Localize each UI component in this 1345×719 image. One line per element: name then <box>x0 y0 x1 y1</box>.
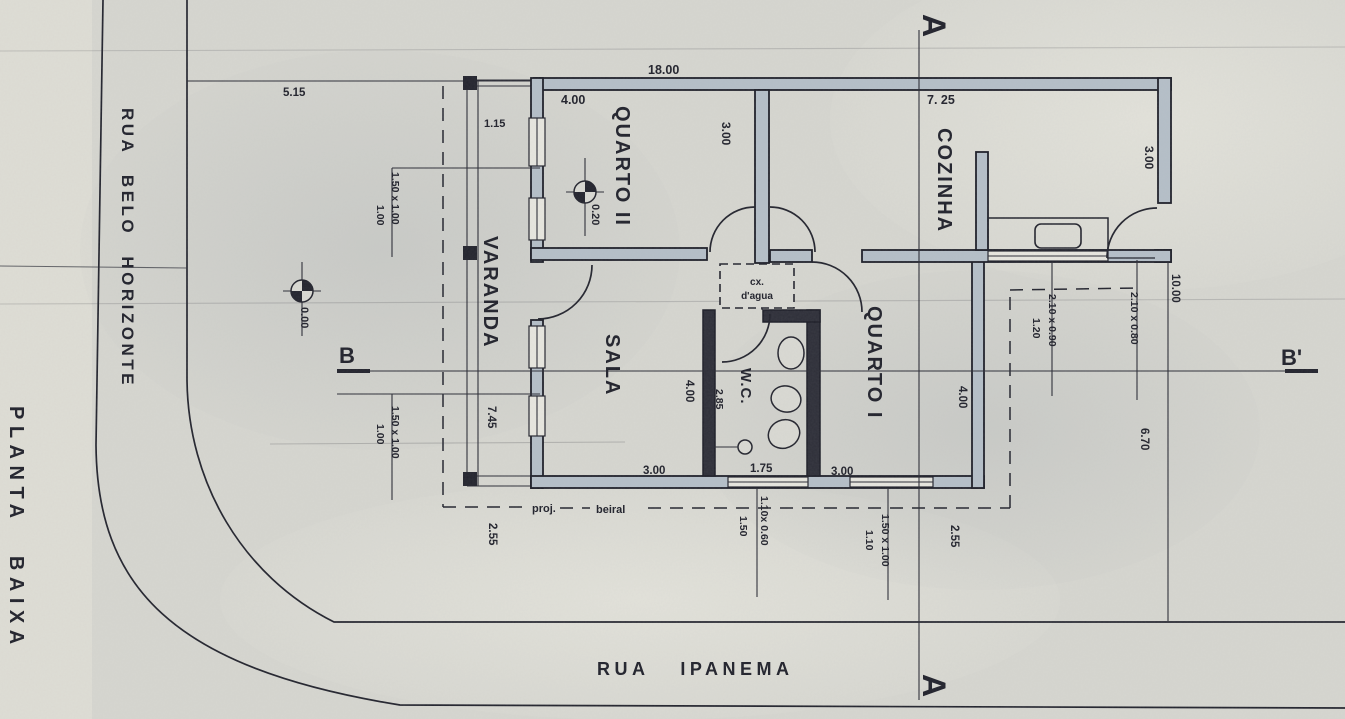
paper-grain-overlay <box>0 0 1345 719</box>
floor-plan-canvas: RUA BELO HORIZONTE RUA IPANEMA PLANTA BA… <box>0 0 1345 719</box>
floor-plan-drawing: RUA BELO HORIZONTE RUA IPANEMA PLANTA BA… <box>0 0 1345 719</box>
